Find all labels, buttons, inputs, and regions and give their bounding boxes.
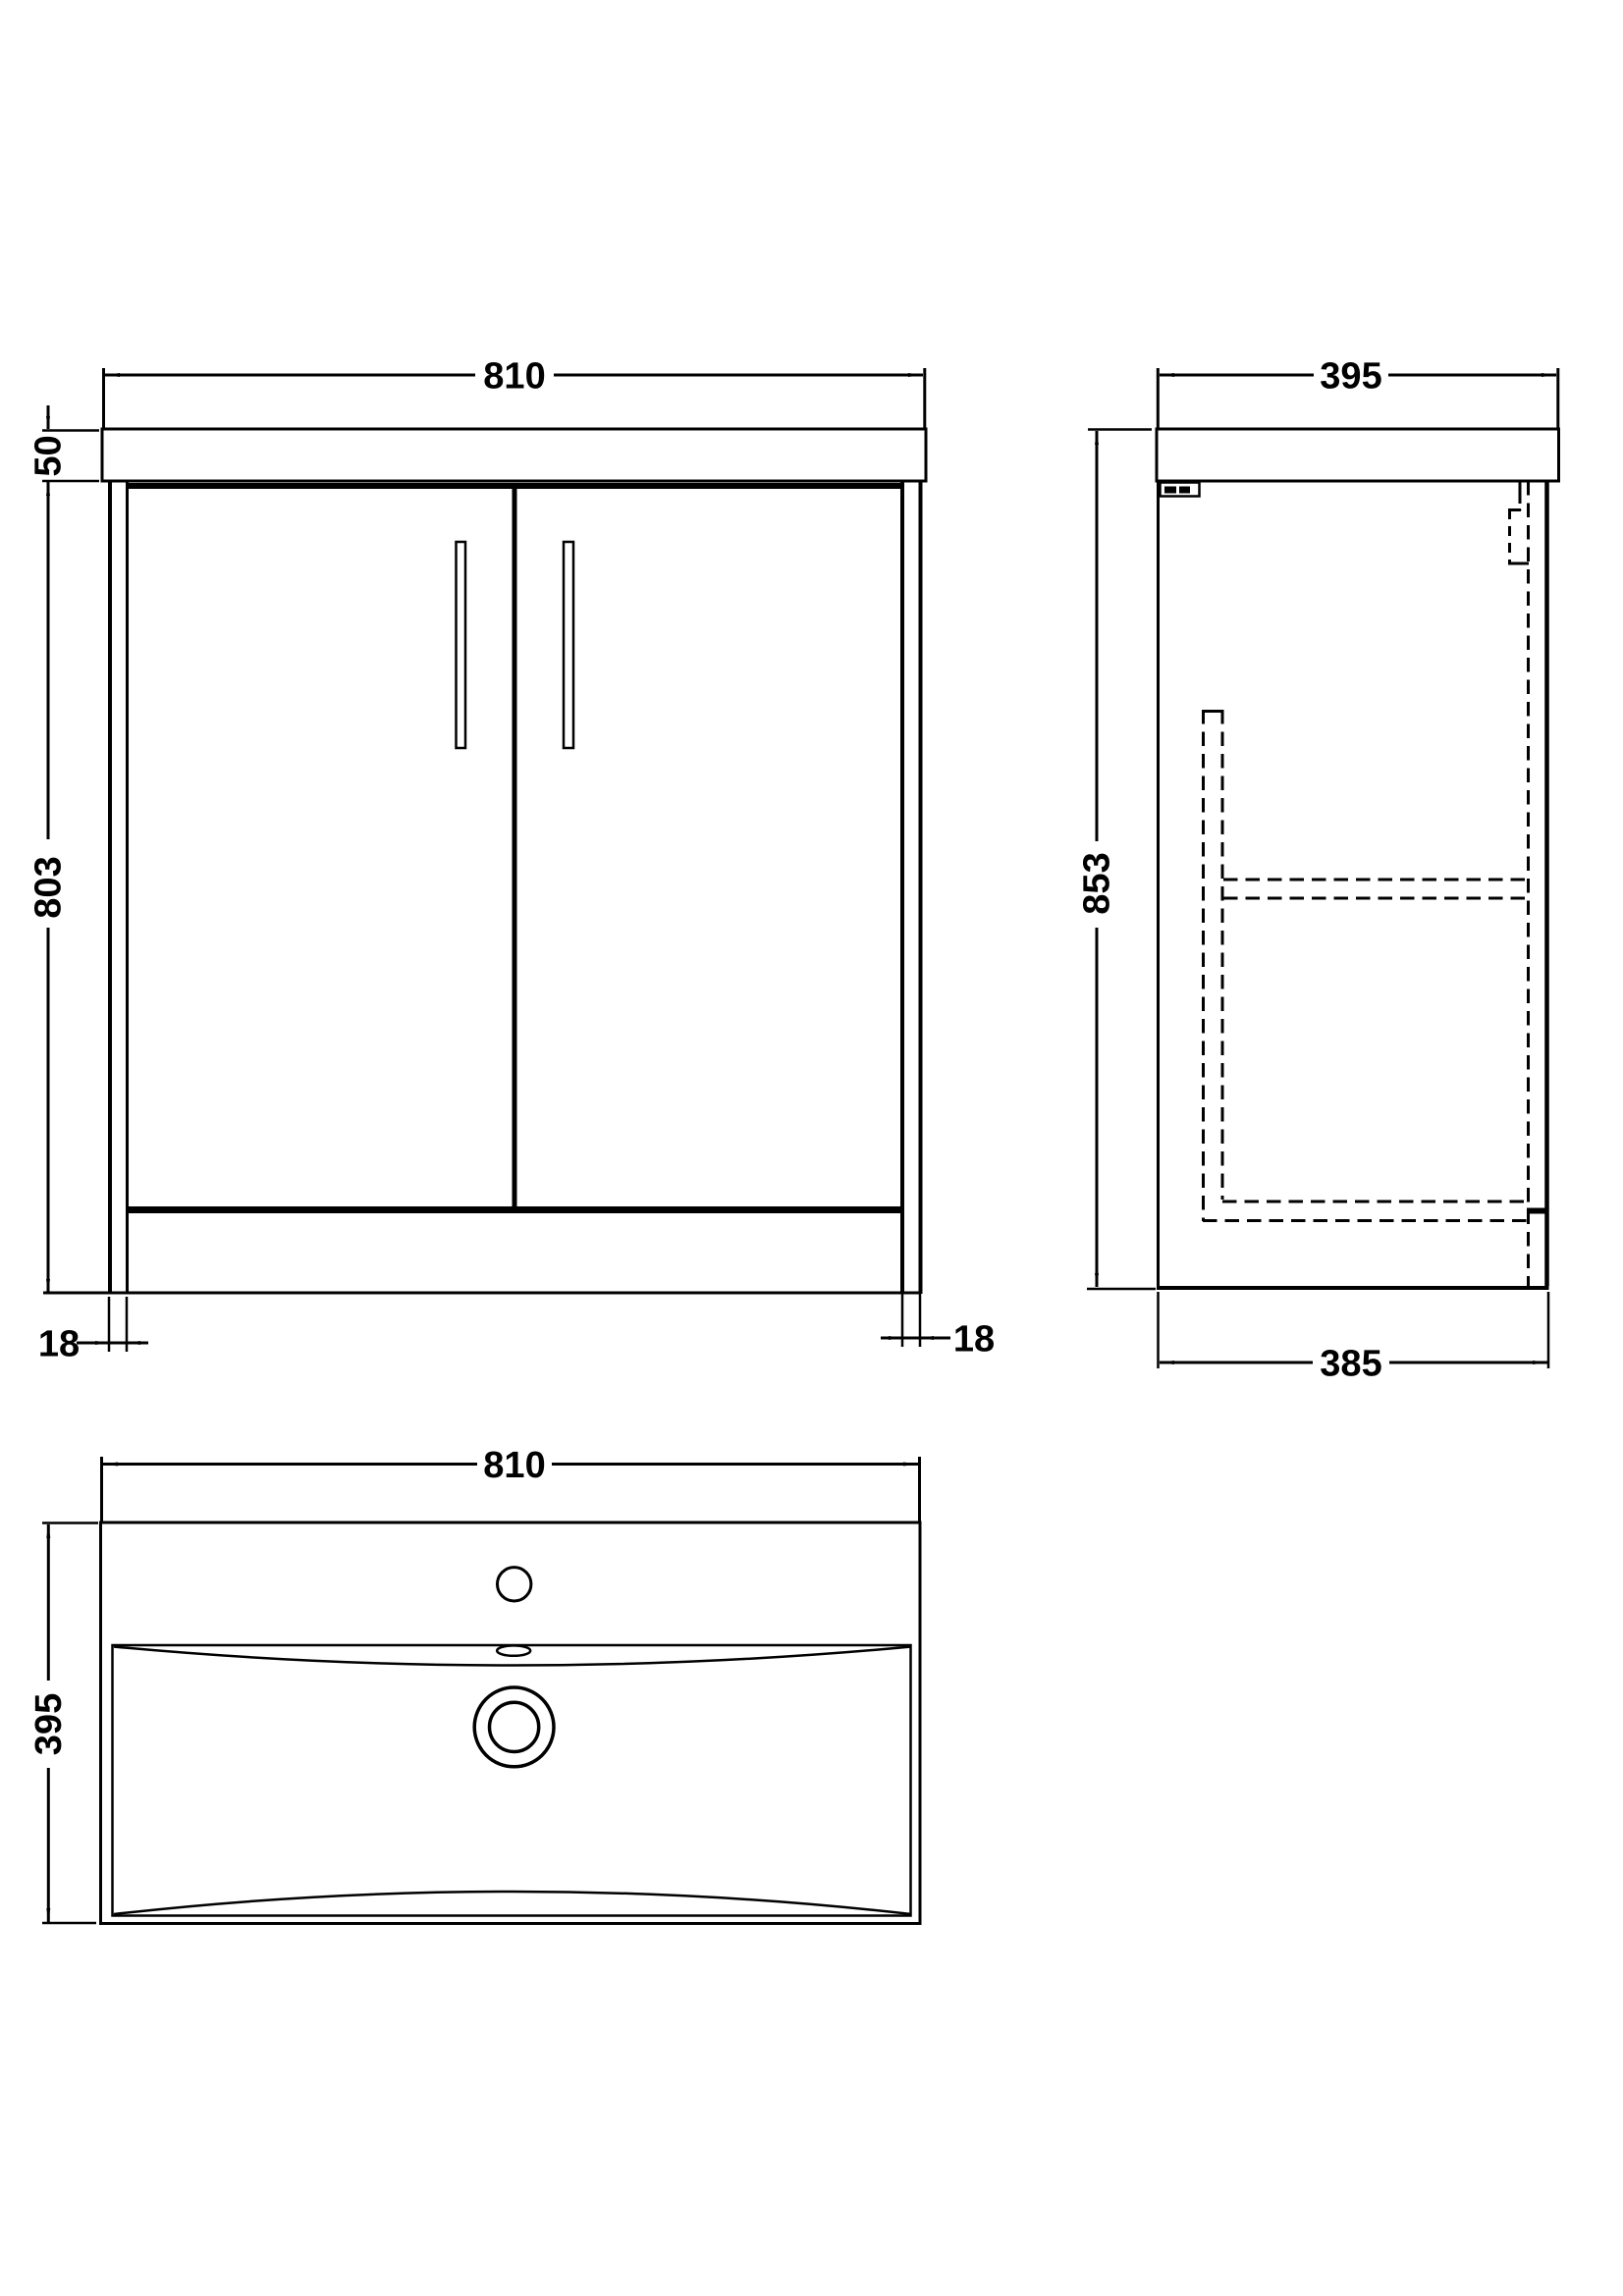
svg-text:50: 50 [28,435,70,476]
svg-text:810: 810 [483,356,545,398]
svg-text:18: 18 [953,1319,995,1361]
svg-text:803: 803 [28,856,70,918]
svg-text:395: 395 [1320,356,1381,398]
svg-text:18: 18 [38,1324,80,1365]
svg-text:853: 853 [1077,852,1118,914]
svg-text:810: 810 [483,1445,545,1486]
svg-text:385: 385 [1320,1344,1381,1385]
svg-text:395: 395 [28,1693,70,1755]
